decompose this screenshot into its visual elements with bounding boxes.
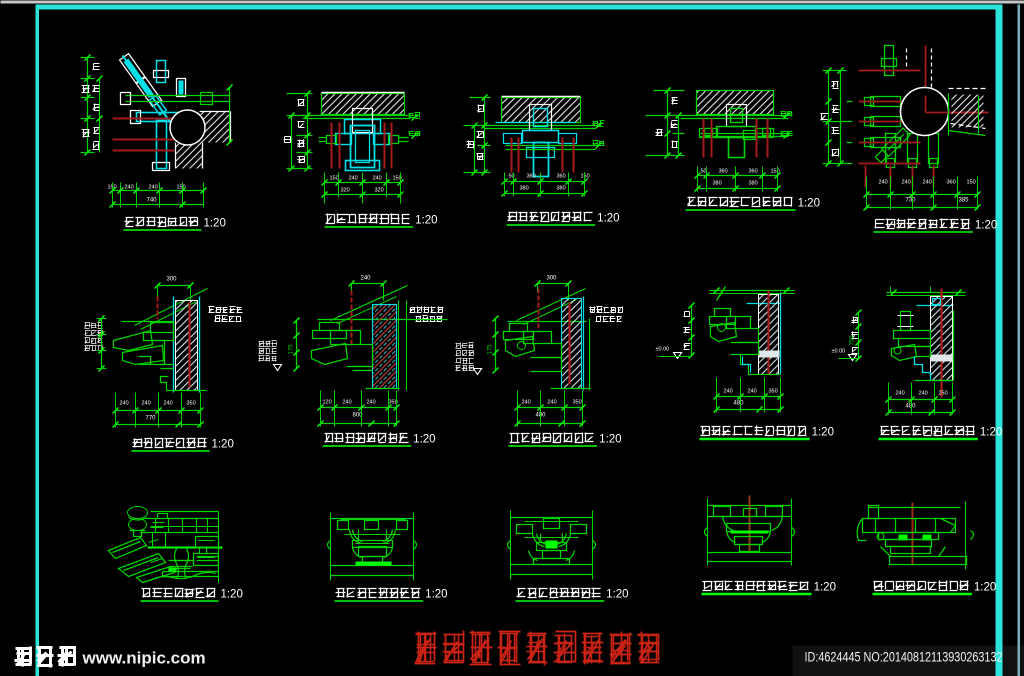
svg-text:1:20: 1:20	[599, 434, 621, 446]
svg-text:740: 740	[147, 198, 158, 204]
svg-text:360: 360	[749, 169, 758, 175]
svg-text:320: 320	[341, 188, 350, 194]
svg-text:240: 240	[343, 400, 352, 406]
svg-text:360: 360	[947, 180, 956, 186]
svg-text:1:20: 1:20	[425, 589, 447, 601]
svg-text:320: 320	[375, 188, 384, 194]
svg-text:350: 350	[573, 400, 582, 406]
svg-text:150: 150	[771, 169, 780, 175]
svg-text:380: 380	[713, 181, 722, 187]
svg-text:1:20: 1:20	[606, 589, 628, 601]
svg-text:240: 240	[120, 401, 129, 407]
svg-text:240: 240	[361, 276, 372, 282]
svg-text:240: 240	[923, 180, 932, 186]
svg-text:1:20: 1:20	[415, 215, 437, 227]
svg-text:385: 385	[959, 198, 970, 204]
svg-text:240: 240	[919, 391, 928, 397]
svg-text:240: 240	[373, 176, 382, 182]
svg-text:240: 240	[748, 389, 757, 395]
svg-text:±0.00: ±0.00	[832, 349, 846, 355]
svg-text:240: 240	[142, 401, 151, 407]
svg-text:240: 240	[164, 401, 173, 407]
svg-text:240: 240	[548, 400, 557, 406]
svg-text:240: 240	[349, 176, 358, 182]
svg-text:480: 480	[734, 401, 745, 407]
svg-text:770: 770	[146, 416, 157, 422]
svg-text:1:20: 1:20	[974, 582, 996, 594]
svg-text:300: 300	[167, 277, 178, 283]
svg-text:380: 380	[520, 186, 529, 192]
svg-text:240: 240	[902, 180, 911, 186]
svg-text:380: 380	[749, 181, 758, 187]
svg-text:250: 250	[939, 391, 948, 397]
svg-text:1:20: 1:20	[203, 218, 225, 230]
svg-text:1:20: 1:20	[980, 427, 1002, 439]
svg-text:www.nipic.com: www.nipic.com	[82, 649, 206, 668]
svg-text:150: 150	[330, 176, 339, 182]
svg-text:150: 150	[581, 174, 590, 180]
svg-text:480: 480	[906, 404, 917, 410]
svg-text:1:20: 1:20	[798, 198, 820, 210]
svg-text:50: 50	[701, 169, 707, 175]
svg-text:360: 360	[527, 174, 536, 180]
svg-text:300: 300	[547, 276, 558, 282]
svg-text:350: 350	[769, 389, 778, 395]
svg-text:1:20: 1:20	[211, 439, 233, 451]
svg-text:175: 175	[289, 344, 295, 355]
svg-text:1:20: 1:20	[814, 582, 836, 594]
svg-text:750: 750	[850, 335, 856, 346]
svg-text:360: 360	[557, 174, 566, 180]
svg-text:1:20: 1:20	[597, 213, 619, 225]
svg-text:±0.00: ±0.00	[656, 347, 670, 353]
svg-text:360: 360	[719, 169, 728, 175]
svg-text:730: 730	[906, 198, 917, 204]
svg-text:240: 240	[367, 400, 376, 406]
svg-text:ID:4624445 NO:2014081211393026: ID:4624445 NO:20140812113930263132	[805, 650, 1003, 665]
svg-text:175: 175	[488, 344, 494, 355]
svg-text:240: 240	[879, 180, 888, 186]
svg-text:350: 350	[187, 401, 196, 407]
svg-text:120: 120	[323, 400, 332, 406]
svg-text:380: 380	[557, 186, 566, 192]
svg-text:1:20: 1:20	[413, 434, 435, 446]
svg-text:240: 240	[724, 389, 733, 395]
svg-text:1:20: 1:20	[812, 427, 834, 439]
svg-text:240: 240	[522, 400, 531, 406]
svg-text:240: 240	[149, 185, 158, 191]
svg-text:150: 150	[967, 180, 976, 186]
svg-text:1:20: 1:20	[220, 589, 242, 601]
svg-text:240: 240	[896, 391, 905, 397]
svg-text:240: 240	[125, 185, 134, 191]
svg-text:1:20: 1:20	[975, 220, 997, 232]
